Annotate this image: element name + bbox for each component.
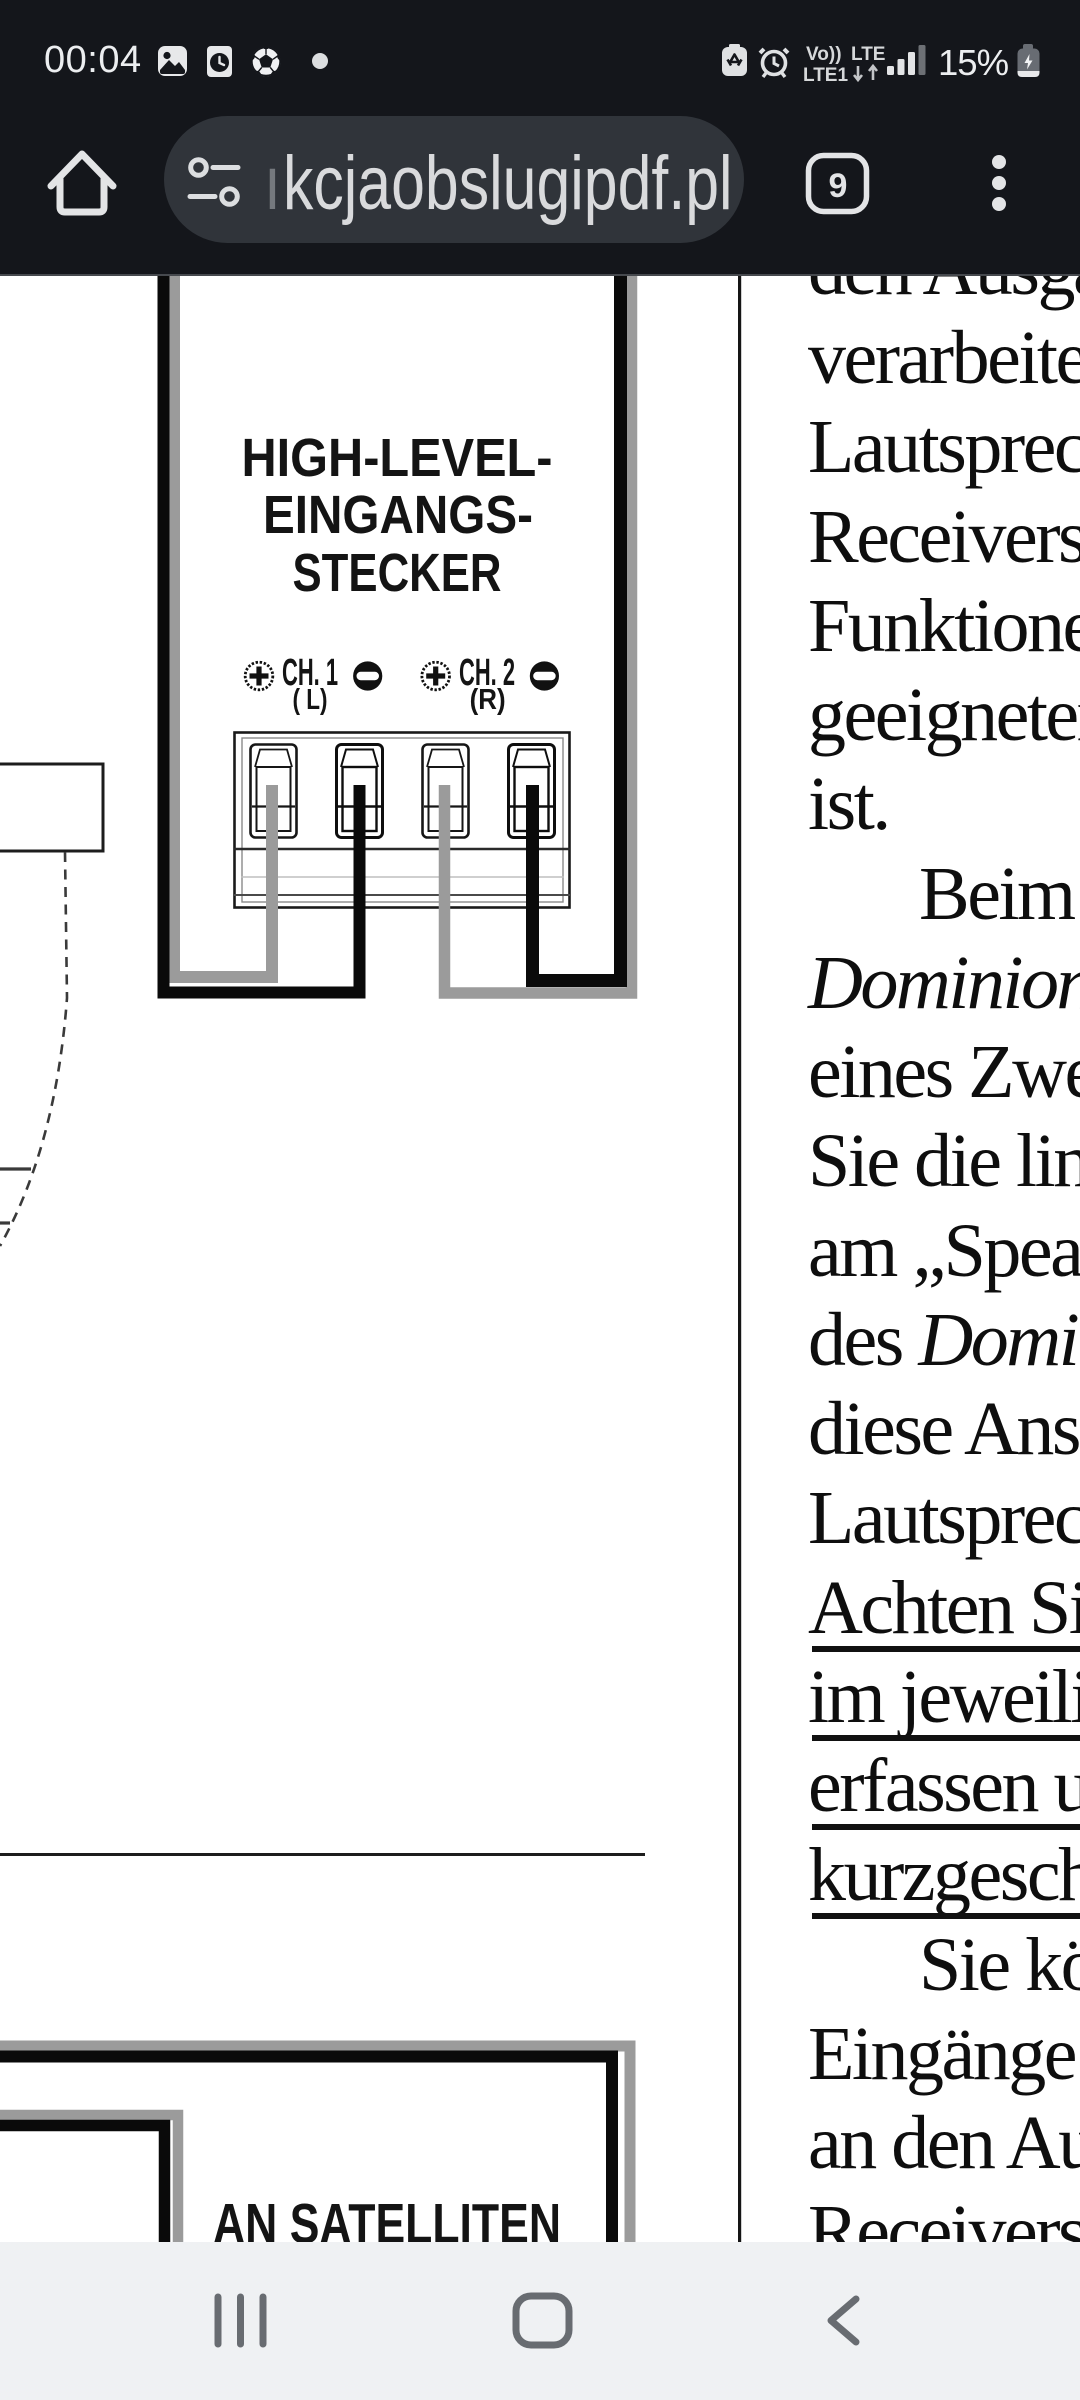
- svg-text:(R): (R): [470, 684, 506, 716]
- svg-text:den Ausga: den Ausga: [808, 276, 1080, 311]
- svg-text:Lautsprech: Lautsprech: [808, 1476, 1080, 1560]
- svg-text:am „Speak: am „Speak: [808, 1209, 1080, 1293]
- svg-text:verarbeiten: verarbeiten: [808, 316, 1080, 400]
- svg-text:im jeweilig: im jeweilig: [808, 1655, 1080, 1739]
- svg-text:Sie kön: Sie kön: [919, 1923, 1080, 2007]
- svg-text:des Domini: des Domini: [808, 1298, 1080, 1382]
- svg-text:eines Zwei: eines Zwei: [808, 1030, 1080, 1114]
- svg-text:Sie die link: Sie die link: [808, 1119, 1080, 1203]
- svg-text:Achten Sie: Achten Sie: [808, 1566, 1080, 1650]
- svg-text:STECKER: STECKER: [293, 543, 502, 603]
- svg-text:an den Au: an den Au: [808, 2101, 1080, 2185]
- svg-text:15%: 15%: [938, 42, 1009, 83]
- svg-text:ist.: ist.: [808, 762, 889, 846]
- svg-text:diese Ansc: diese Ansc: [808, 1387, 1080, 1471]
- svg-text:HIGH-LEVEL-: HIGH-LEVEL-: [242, 428, 553, 488]
- svg-text:Receiverse: Receiverse: [808, 495, 1080, 579]
- svg-text:( L): ( L): [293, 684, 328, 716]
- svg-text:Lautsprech: Lautsprech: [808, 405, 1080, 489]
- svg-text:LTE1: LTE1: [803, 65, 848, 86]
- svg-text:Vo)): Vo)): [806, 44, 842, 65]
- svg-text:EINGANGS-: EINGANGS-: [263, 485, 533, 545]
- svg-text:Receivers: Receivers: [808, 2190, 1080, 2242]
- svg-text:geeigneten: geeigneten: [808, 673, 1080, 757]
- svg-text:9: 9: [829, 167, 848, 205]
- svg-text:Funktionen: Funktionen: [808, 584, 1080, 668]
- svg-text:kurzgeschl: kurzgeschl: [808, 1833, 1080, 1917]
- svg-text:Beim An: Beim An: [919, 852, 1080, 936]
- svg-text:LTE: LTE: [851, 44, 885, 65]
- svg-text:AN SATELLITEN: AN SATELLITEN: [213, 2192, 561, 2242]
- svg-text:Dominion a: Dominion a: [807, 941, 1080, 1025]
- svg-text:Eingänge a: Eingänge a: [808, 2012, 1080, 2096]
- svg-text:erfassen un: erfassen un: [808, 1744, 1080, 1828]
